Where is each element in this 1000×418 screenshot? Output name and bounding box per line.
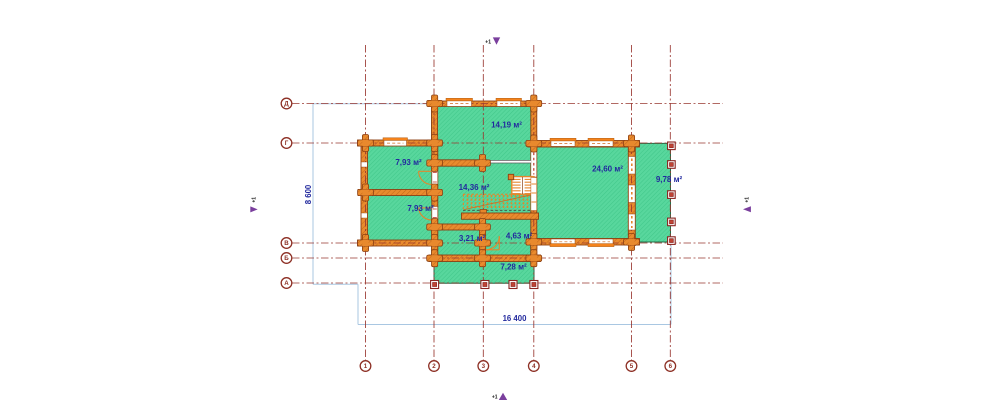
svg-text:3,21 м²: 3,21 м² [459,234,486,243]
svg-text:+1: +1 [492,395,498,401]
svg-text:24,60 м²: 24,60 м² [592,165,623,174]
svg-text:4,63 м²: 4,63 м² [506,232,533,241]
svg-text:7,93 м²: 7,93 м² [395,158,422,167]
svg-text:7,28 м²: 7,28 м² [500,263,527,272]
svg-text:+1: +1 [745,197,751,203]
svg-text:3: 3 [482,363,486,370]
svg-text:14,19 м²: 14,19 м² [491,121,522,130]
svg-text:+1: +1 [485,40,491,46]
svg-text:Б: Б [284,255,289,262]
svg-text:16 400: 16 400 [503,314,528,323]
svg-text:1: 1 [364,363,368,370]
svg-text:2: 2 [432,363,436,370]
svg-text:Д: Д [284,101,289,108]
svg-text:6: 6 [669,363,673,370]
svg-text:14,36 м²: 14,36 м² [459,183,490,192]
svg-text:А: А [284,280,289,287]
svg-text:8 600: 8 600 [304,184,313,204]
svg-text:Г: Г [285,140,289,147]
svg-text:5: 5 [630,363,634,370]
svg-text:7,93 м²: 7,93 м² [407,204,434,213]
svg-text:+1: +1 [252,197,258,203]
svg-text:4: 4 [532,363,536,370]
svg-text:В: В [284,240,289,247]
svg-text:9,78 м²: 9,78 м² [656,175,683,184]
